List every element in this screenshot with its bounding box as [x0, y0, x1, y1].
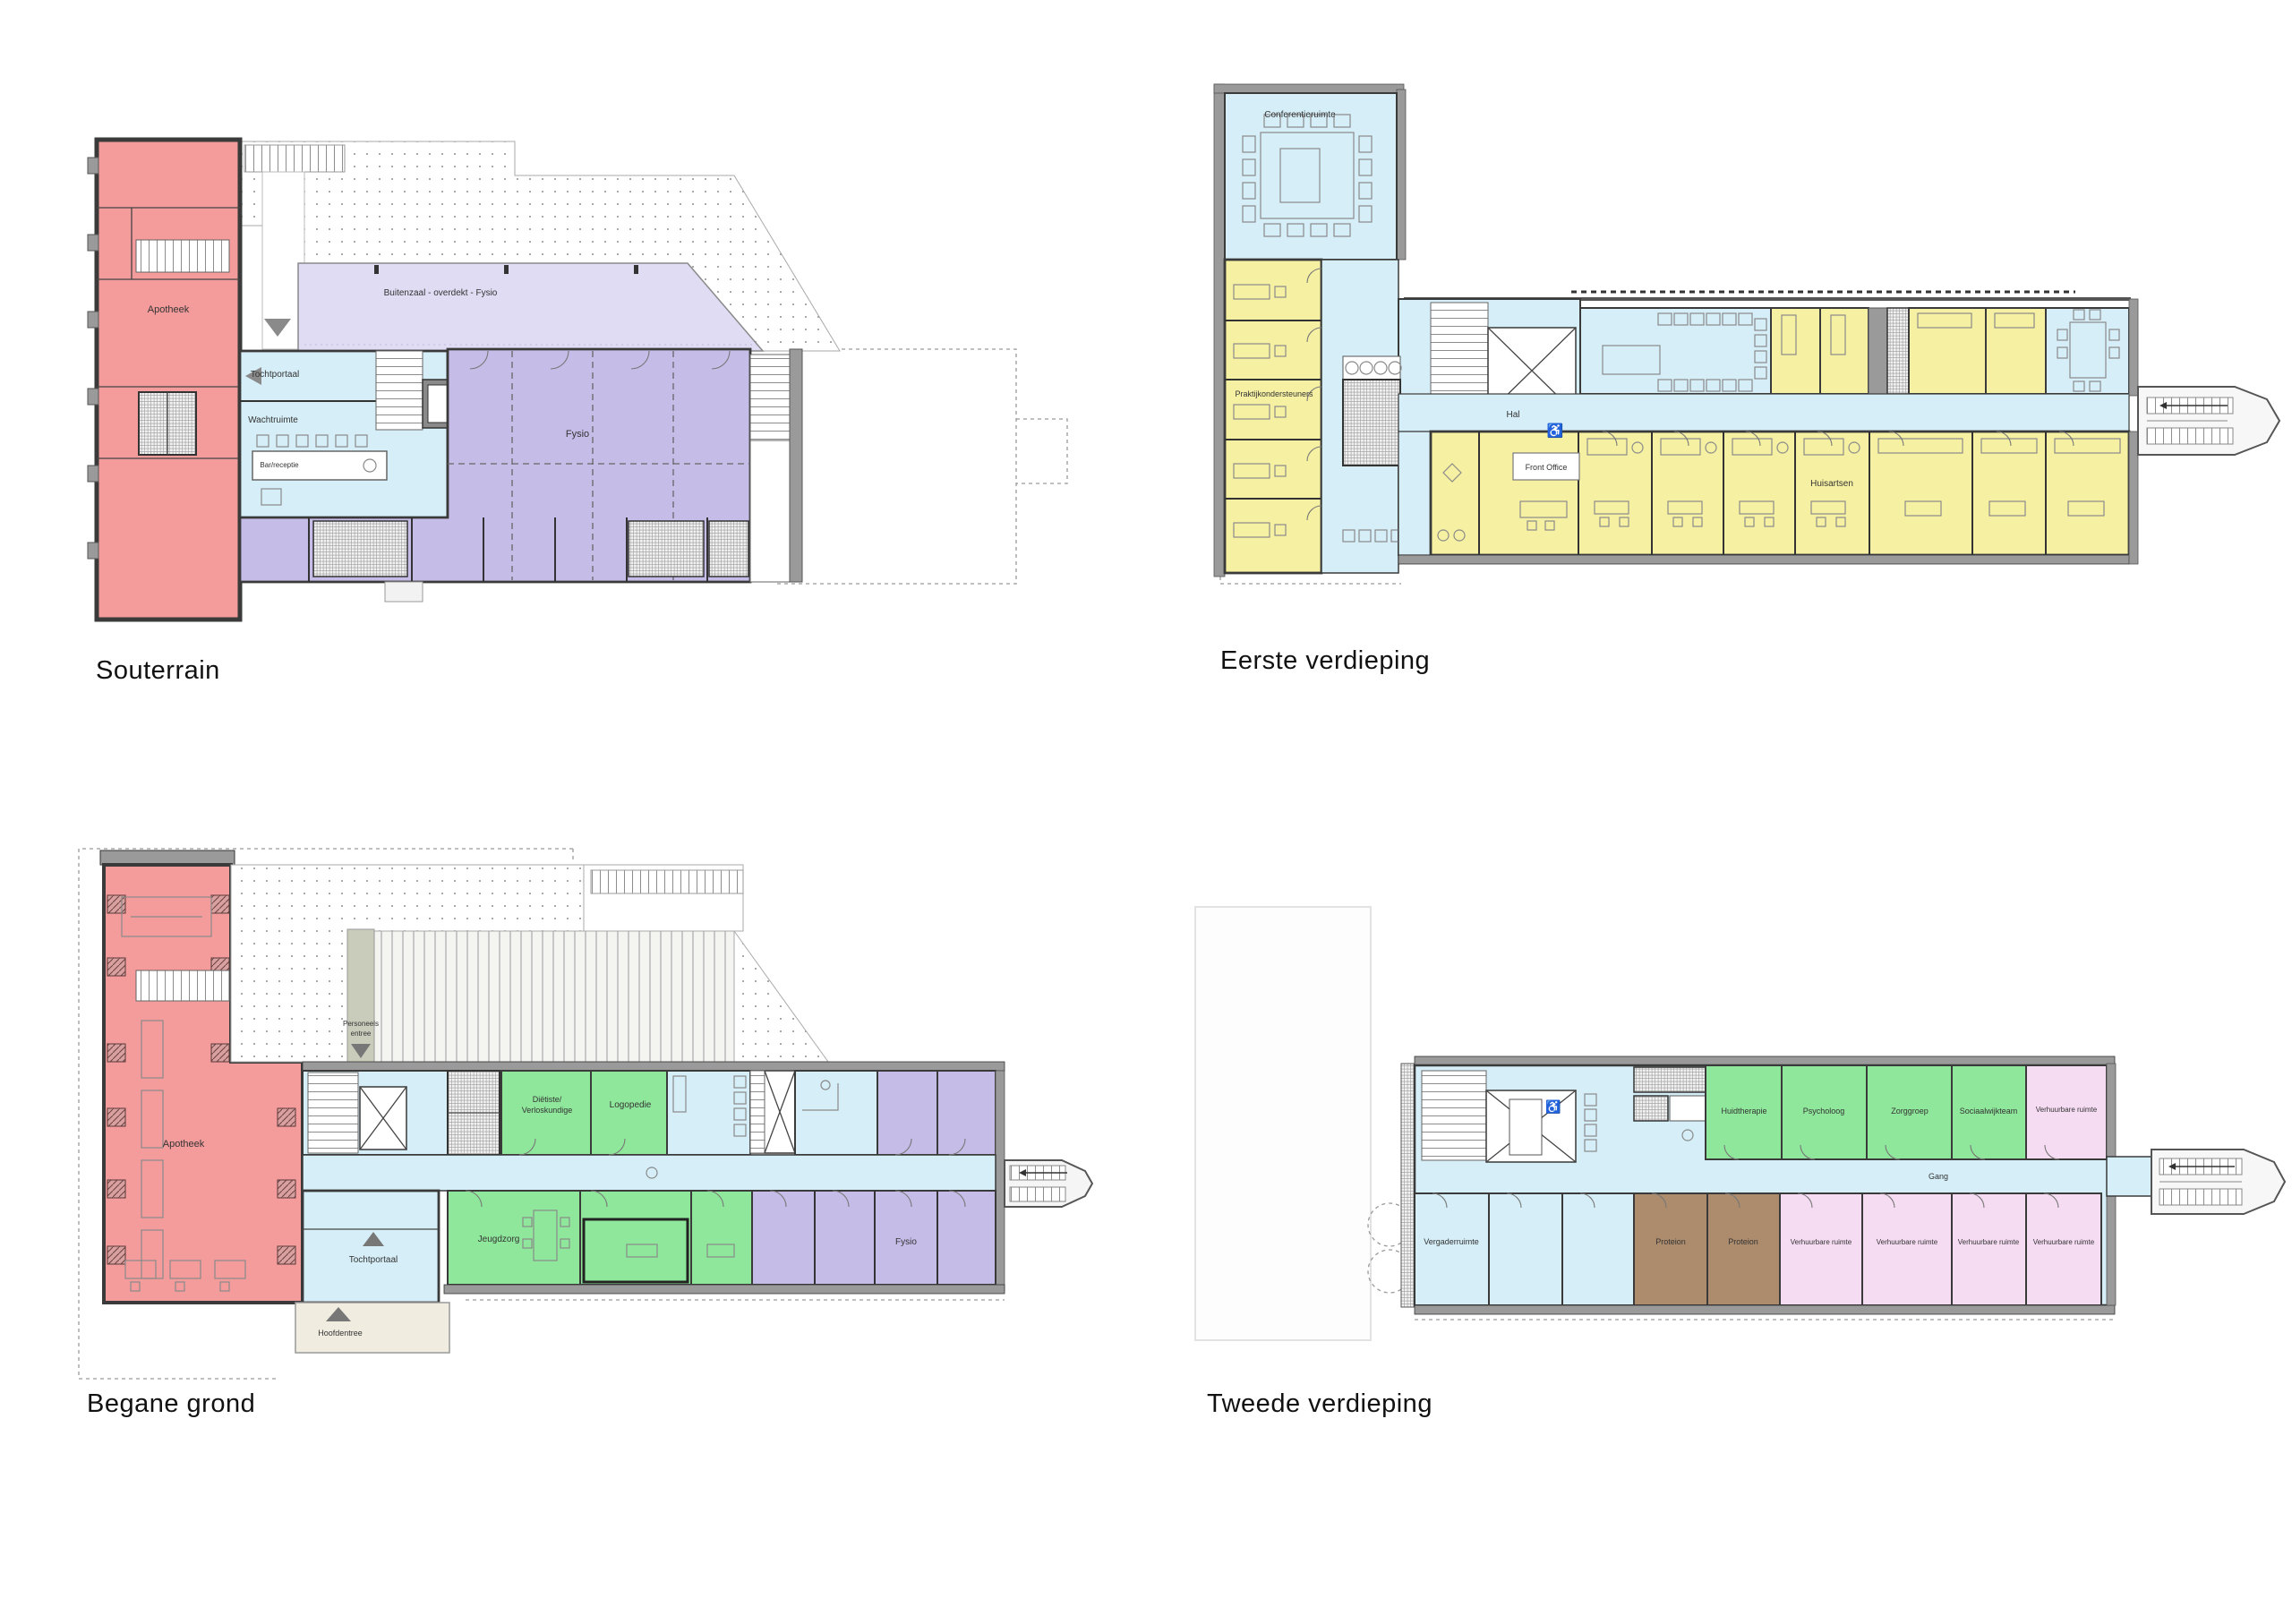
corridor: [303, 1155, 996, 1191]
room-vergaderruimte: [1415, 1193, 1489, 1305]
title-begane-grond: Begane grond: [87, 1389, 255, 1419]
room-label: Huisartsen: [1810, 479, 1853, 489]
room-label: Fysio: [566, 429, 589, 440]
room-label: Conferentieruimte: [1264, 110, 1336, 120]
exterior-wall: [1401, 1064, 1415, 1307]
toilets: [1634, 1067, 1706, 1092]
room-label: Diëtiste/: [533, 1095, 562, 1104]
room-label: Zorggroep: [1891, 1107, 1929, 1115]
future-extension-outline: [777, 349, 1067, 584]
room-label: Gang: [1929, 1172, 1948, 1181]
room-label: Tochtportaal: [349, 1255, 398, 1265]
exterior-stair: [591, 870, 743, 893]
room-apotheek-souterrain: [97, 140, 240, 620]
room-label: Apotheek: [163, 1139, 205, 1150]
toilets: [1634, 1096, 1668, 1121]
floor-souterrain: ApotheekTochtportaalWachtruimteBar/recep…: [88, 140, 1067, 620]
wheelchair-icon: ♿: [1547, 423, 1564, 439]
room-label: Front Office: [1526, 463, 1568, 472]
room-label: Wachtruimte: [248, 415, 298, 425]
stairs: [1422, 1071, 1486, 1160]
room-label: Verhuurbare ruimte: [2036, 1106, 2098, 1114]
room-proteion: [1707, 1193, 1780, 1305]
room-proteion: [1634, 1193, 1707, 1305]
exterior-wall: [1214, 84, 1225, 577]
room-verhuurbaar: [1862, 1193, 1952, 1305]
wheelchair-icon: ♿: [1545, 1099, 1561, 1115]
title-tweede-verdieping: Tweede verdieping: [1207, 1389, 1432, 1419]
room-label: Verhuurbare ruimte: [2033, 1238, 2095, 1246]
room-label: Verhuurbare ruimte: [1877, 1238, 1938, 1246]
canopy: [374, 931, 734, 1062]
floor-tweede-verdieping: HuidtherapiePsycholoogZorggroepSociaalwi…: [1195, 907, 2285, 1340]
stairs: [308, 1073, 358, 1153]
room-label: Buitenzaal - overdekt - Fysio: [384, 288, 498, 298]
room-label: Vergaderruimte: [1424, 1237, 1479, 1246]
hoofdentree-porch: [295, 1303, 449, 1353]
room-label: Logopedie: [610, 1100, 652, 1110]
title-souterrain: Souterrain: [96, 656, 220, 686]
room-label: Verhuurbare ruimte: [1958, 1238, 2020, 1246]
room-label: Tochtportaal: [251, 370, 299, 380]
rooms-huisartsen-band: [1431, 432, 2129, 555]
waiting-area: [667, 1071, 750, 1155]
room-verhuurbaar: [2026, 1193, 2101, 1305]
room-label: entree: [351, 1030, 372, 1038]
room-label: Personeels: [343, 1020, 379, 1028]
room-buitenzaal: [298, 263, 763, 351]
exterior-stair: [244, 145, 345, 172]
room-label: Proteion: [1655, 1237, 1686, 1246]
stairs: [136, 240, 229, 272]
roof-outline: [1195, 907, 1371, 1340]
room-meeting: [2046, 308, 2129, 394]
floor-begane-grond: ApotheekPersoneelsentreeTochtportaalHoof…: [79, 849, 1092, 1379]
room-kantine: [1580, 308, 1771, 394]
room-logopedie: [591, 1071, 667, 1155]
room-label: Huidtherapie: [1721, 1107, 1766, 1115]
room-label: Verloskundige: [522, 1106, 573, 1115]
room-label: Proteion: [1728, 1237, 1758, 1246]
stairs: [376, 351, 423, 430]
toilets: [1343, 380, 1400, 466]
room-label: Hoofdentree: [318, 1329, 363, 1338]
room-label: Verhuurbare ruimte: [1791, 1238, 1852, 1246]
toilets: [709, 521, 748, 577]
exterior-wall: [790, 349, 802, 582]
kitchen: [795, 1071, 877, 1155]
room-label: Praktijkondersteuners: [1235, 389, 1313, 398]
room-label: Apotheek: [148, 304, 190, 315]
stairs: [750, 355, 790, 440]
floorplan-canvas: ApotheekTochtportaalWachtruimteBar/recep…: [0, 0, 2292, 1624]
stairs: [136, 970, 229, 1001]
room-label: Bar/receptie: [260, 461, 299, 469]
room-verhuurbaar: [1780, 1193, 1862, 1305]
room-tochtportaal: [303, 1191, 439, 1303]
room-verhuurbaar: [1952, 1193, 2026, 1305]
room-label: Jeugdzorg: [478, 1235, 520, 1244]
room-label: Sociaalwijkteam: [1960, 1107, 2018, 1115]
room-label: Psycholoog: [1803, 1107, 1845, 1115]
toilets: [1887, 308, 1909, 394]
title-eerste-verdieping: Eerste verdieping: [1220, 646, 1430, 676]
floor-eerste-verdieping: ConferentieruimtePraktijkondersteunersHa…: [1214, 84, 2279, 584]
showers: [313, 521, 407, 577]
room-label: Fysio: [895, 1237, 917, 1247]
rooms-praktijkondersteuners: [1225, 260, 1321, 573]
showers: [629, 521, 704, 577]
room-label: Hal: [1506, 410, 1519, 420]
